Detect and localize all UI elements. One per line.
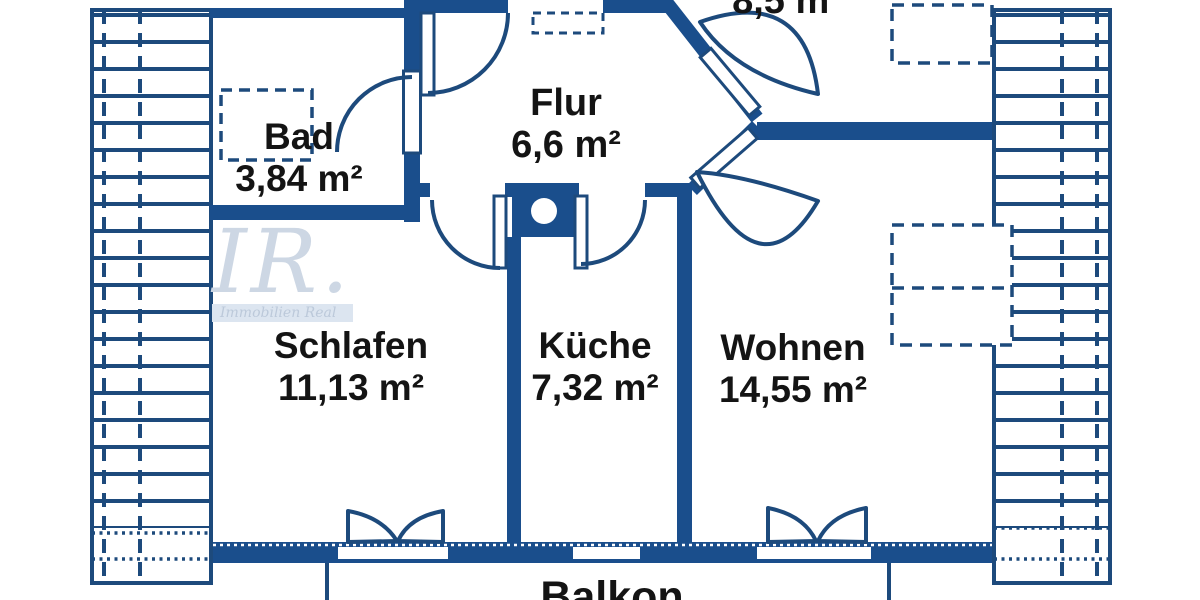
room-area: 3,84 m² — [235, 158, 363, 200]
upper-door-swing-petal — [700, 13, 818, 94]
hall-fixture-dashed-outline — [533, 13, 603, 33]
room-name: Bad — [264, 116, 334, 158]
room-area: 7,32 m² — [531, 367, 659, 409]
room-name: Balkon — [540, 576, 683, 600]
room-name: Flur — [530, 82, 602, 124]
left-roof-hatch-band — [92, 10, 211, 583]
room-name: Schlafen — [274, 325, 428, 367]
room-name: Küche — [538, 325, 651, 367]
kueche-door-arc — [581, 200, 645, 264]
wardrobe-dashed-outline — [892, 225, 1012, 345]
room-name: Wohnen — [720, 327, 865, 369]
floor-plan: IR. Immobilien Real Bad 3,84 m² Flur 6,6… — [0, 0, 1200, 600]
room-area: 14,55 m² — [719, 369, 867, 411]
room-label-wohnen: Wohnen 14,55 m² — [719, 327, 867, 411]
cupboard-dashed-outline — [892, 5, 992, 63]
schlafen-door-leaf — [494, 196, 506, 268]
room-label-kueche: Küche 7,32 m² — [531, 325, 659, 409]
hall-door-leaf — [421, 13, 434, 95]
kueche-window — [573, 547, 640, 559]
room-label-zimmer-oben: 8,5 m² — [732, 0, 842, 22]
hall-door-arc — [428, 13, 508, 93]
lower-door-swing-petal — [697, 172, 818, 244]
room-area: 11,13 m² — [278, 367, 424, 409]
room-area: 8,5 m² — [732, 0, 842, 22]
wohnen-window — [757, 547, 871, 559]
watermark: IR. Immobilien Real — [212, 222, 353, 322]
kueche-door-leaf — [575, 196, 587, 268]
bad-door-leaf — [404, 71, 421, 153]
schlafen-door-arc — [432, 200, 500, 268]
room-label-flur: Flur 6,6 m² — [511, 82, 621, 166]
chimney — [512, 183, 575, 237]
room-area: 6,6 m² — [511, 124, 621, 166]
schlafen-window — [338, 547, 448, 559]
room-label-bad: Bad 3,84 m² — [235, 116, 363, 200]
watermark-initials: IR. — [212, 222, 353, 302]
room-label-schlafen: Schlafen 11,13 m² — [274, 325, 428, 409]
room-label-balkon: Balkon — [540, 576, 683, 600]
watermark-subtitle: Immobilien Real — [212, 304, 353, 322]
schlafen-window-casement-icon — [348, 511, 443, 542]
wohnen-window-casement-icon — [768, 508, 866, 542]
